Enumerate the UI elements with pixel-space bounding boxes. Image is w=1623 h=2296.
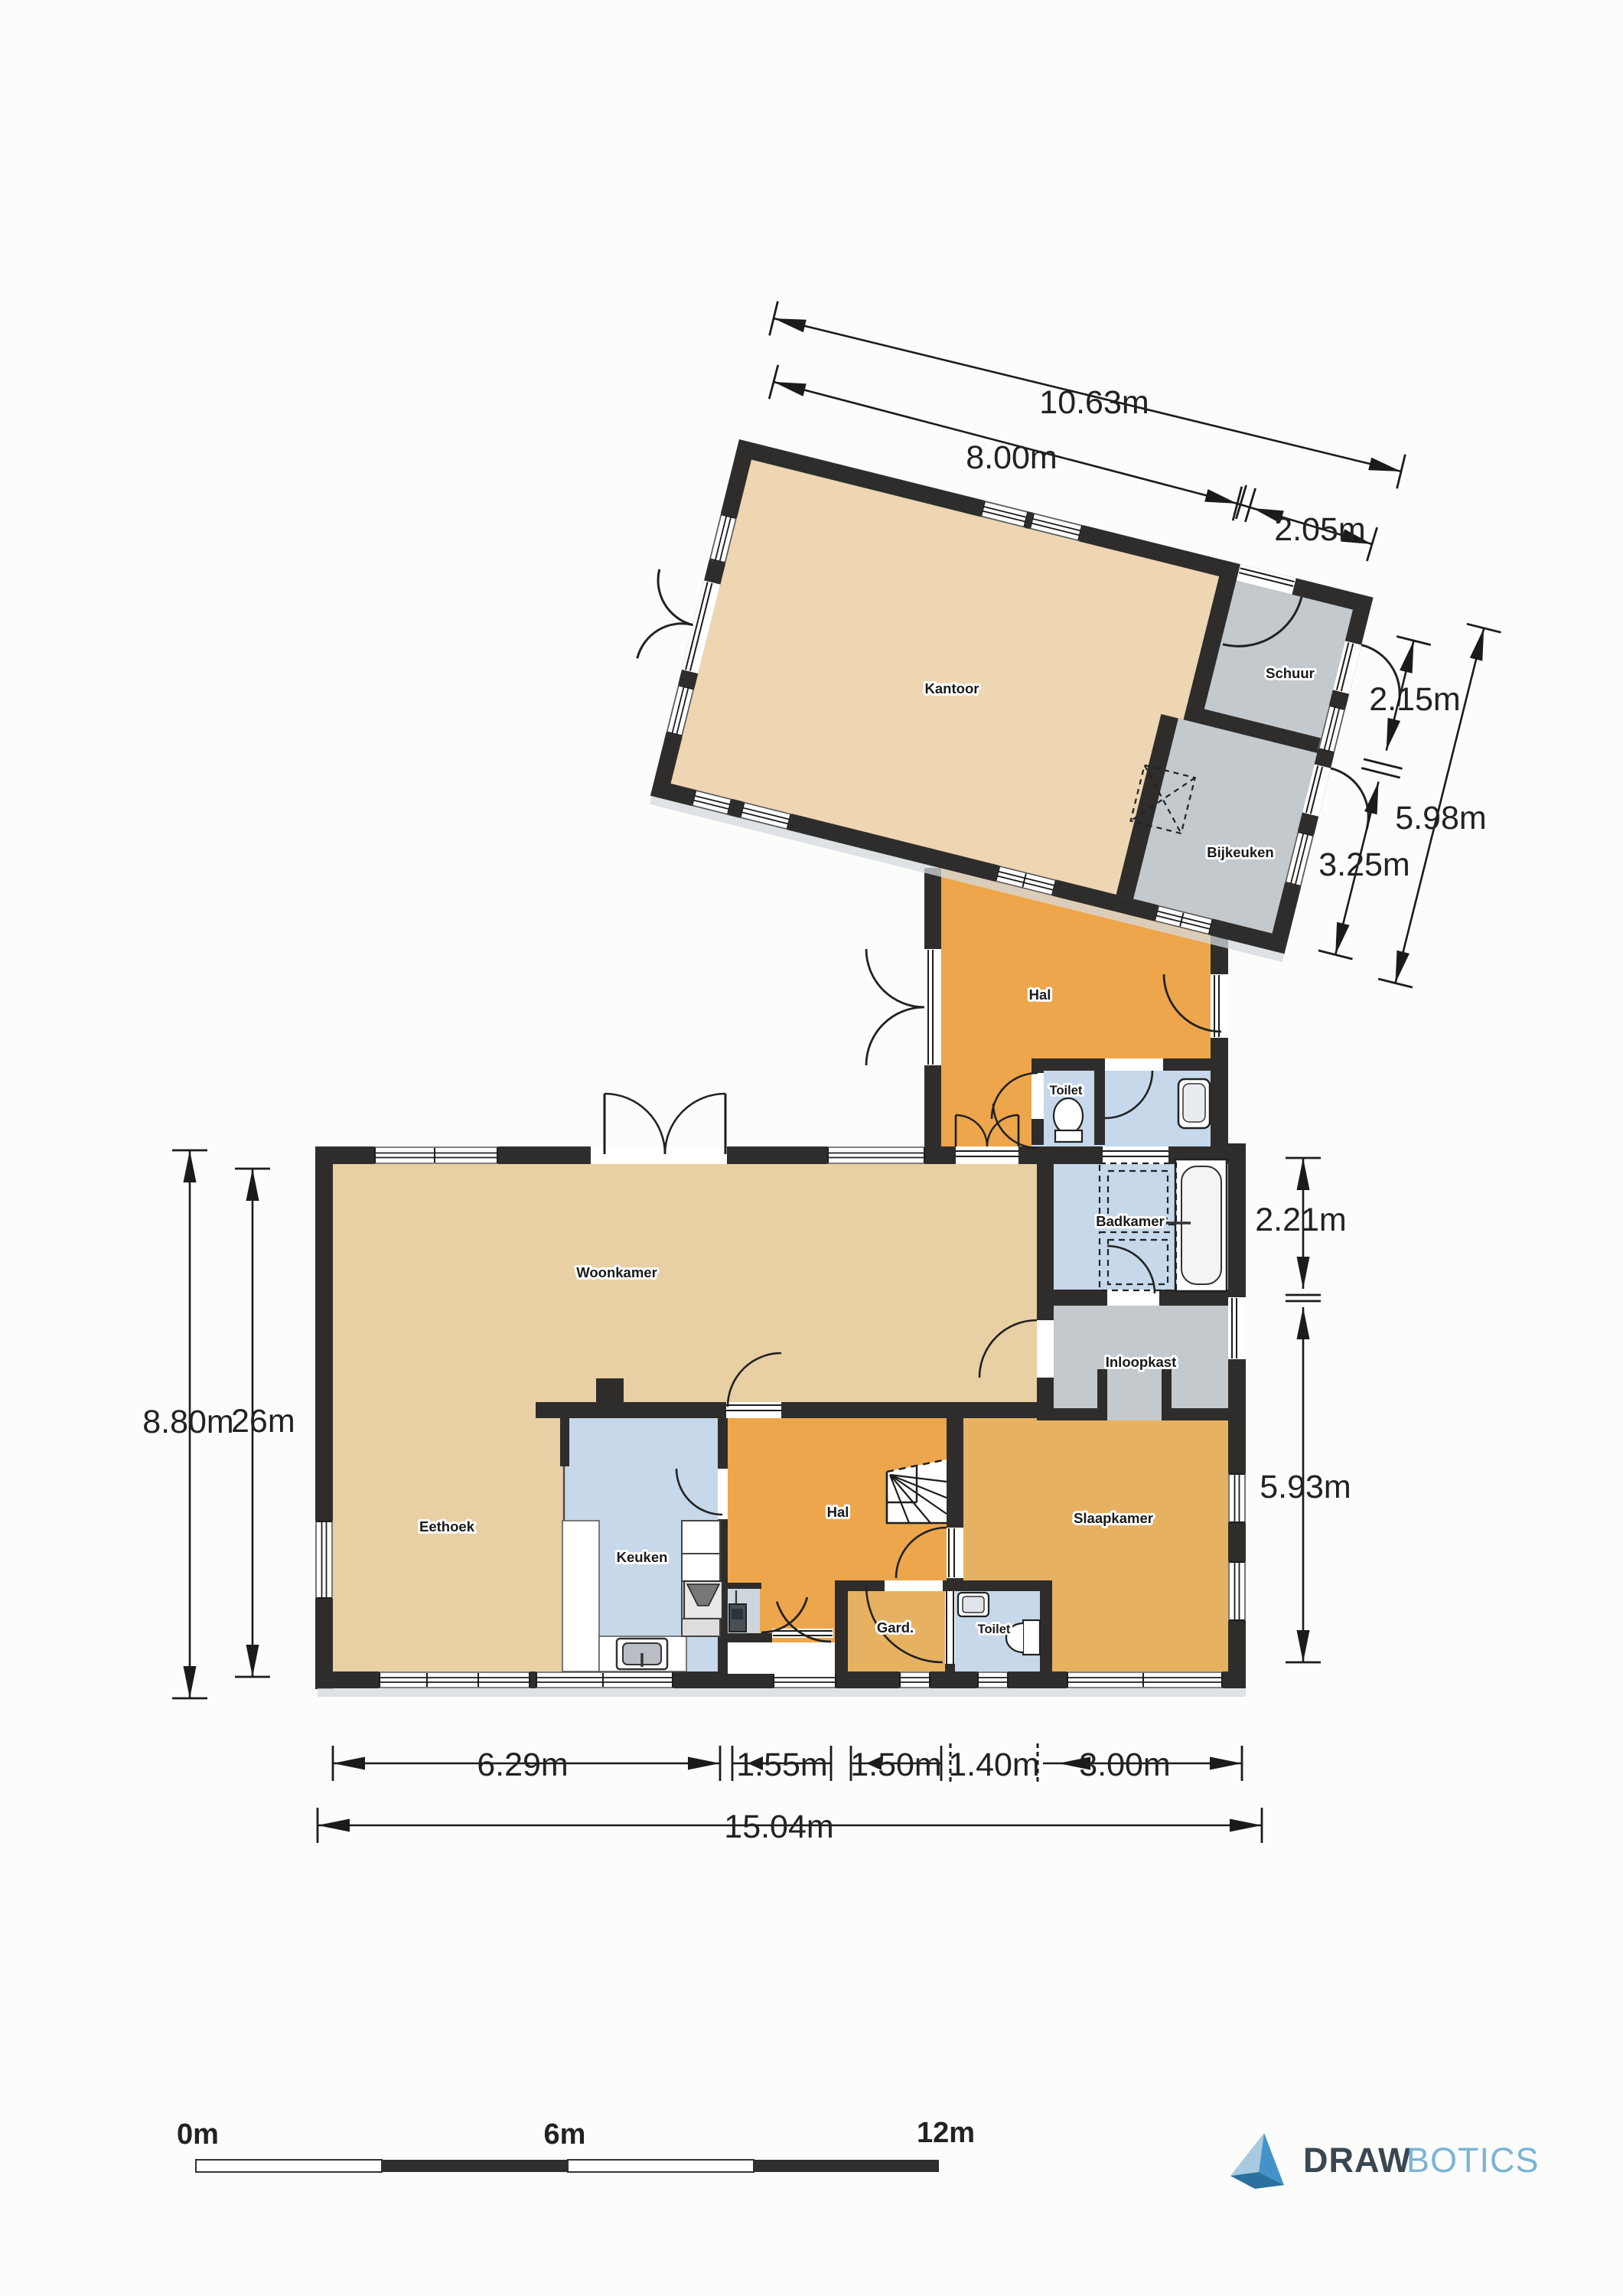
svg-text:Toilet: Toilet xyxy=(978,1623,1011,1636)
svg-text:Keuken: Keuken xyxy=(617,1549,668,1565)
svg-text:DRAW: DRAW xyxy=(1303,2141,1411,2180)
svg-text:2.21m: 2.21m xyxy=(1255,1202,1347,1238)
svg-text:3.00m: 3.00m xyxy=(1079,1746,1171,1783)
svg-text:Woonkamer: Woonkamer xyxy=(576,1264,657,1280)
svg-text:Inloopkast: Inloopkast xyxy=(1106,1354,1177,1370)
svg-text:6.29m: 6.29m xyxy=(477,1746,569,1783)
svg-text:8.00m: 8.00m xyxy=(966,439,1058,476)
svg-text:Kantoor: Kantoor xyxy=(925,680,979,696)
svg-text:3.25m: 3.25m xyxy=(1318,846,1410,883)
svg-text:2.05m: 2.05m xyxy=(1274,511,1366,548)
svg-text:Hal: Hal xyxy=(1029,987,1051,1003)
svg-text:Gard.: Gard. xyxy=(877,1619,914,1636)
svg-text:15.04m: 15.04m xyxy=(724,1808,833,1845)
svg-text:Toilet: Toilet xyxy=(1050,1084,1083,1097)
svg-text:6m: 6m xyxy=(544,2118,586,2151)
svg-text:Hal: Hal xyxy=(827,1504,849,1520)
svg-text:Bijkeuken: Bijkeuken xyxy=(1207,844,1273,860)
svg-text:Eethoek: Eethoek xyxy=(419,1518,475,1534)
svg-text:1.50m: 1.50m xyxy=(850,1746,942,1783)
svg-text:10.63m: 10.63m xyxy=(1039,384,1149,421)
svg-text:Badkamer: Badkamer xyxy=(1096,1213,1164,1229)
svg-text:12m: 12m xyxy=(917,2117,975,2149)
svg-text:26m: 26m xyxy=(231,1403,295,1440)
svg-text:2.15m: 2.15m xyxy=(1369,681,1461,718)
svg-text:5.98m: 5.98m xyxy=(1395,800,1487,837)
svg-text:5.93m: 5.93m xyxy=(1260,1469,1351,1505)
svg-text:BOTICS: BOTICS xyxy=(1406,2141,1540,2180)
svg-text:1.40m: 1.40m xyxy=(948,1746,1040,1783)
svg-text:Slaapkamer: Slaapkamer xyxy=(1074,1510,1153,1526)
svg-text:Schuur: Schuur xyxy=(1266,665,1315,681)
svg-text:1.55m: 1.55m xyxy=(736,1746,828,1783)
svg-text:0m: 0m xyxy=(177,2118,219,2151)
svg-text:8.80m: 8.80m xyxy=(142,1404,234,1440)
